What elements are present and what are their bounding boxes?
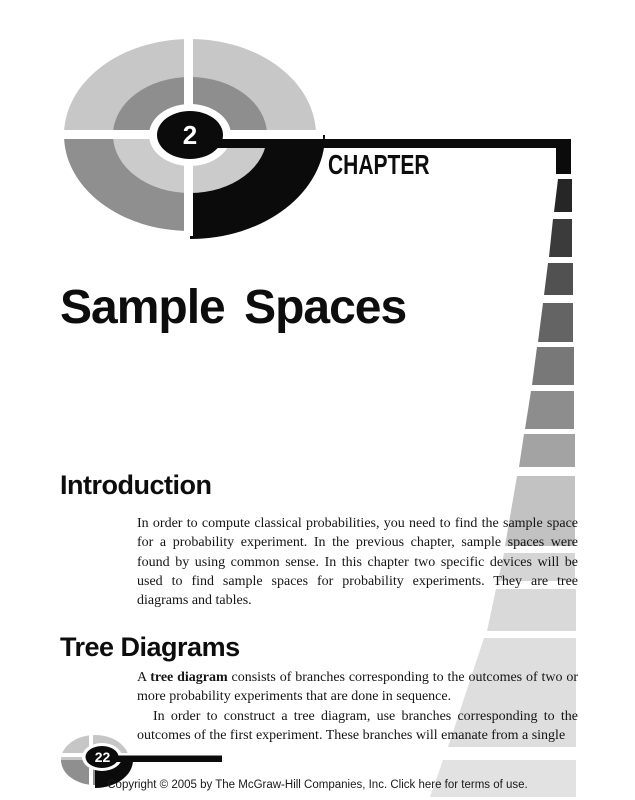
section-heading-introduction: Introduction — [60, 472, 211, 499]
tree-paragraph-2: In order to construct a tree diagram, us… — [137, 707, 578, 746]
tree-diagram-term: tree diagram — [150, 670, 227, 685]
staircase-block — [549, 219, 572, 257]
intro-paragraph: In order to compute classical probabilit… — [137, 514, 578, 610]
staircase-block — [538, 303, 573, 342]
page-title: Sample Spaces — [60, 284, 406, 332]
staircase-block — [525, 391, 574, 429]
staircase-block — [554, 179, 572, 212]
staircase-block — [532, 347, 574, 385]
staircase-block — [519, 434, 575, 467]
book-page: 2 CHAPTER Sample Spaces Introduction In … — [0, 0, 635, 800]
tree-paragraph-1: A tree diagram consists of branches corr… — [137, 668, 578, 707]
section-heading-tree-diagrams: Tree Diagrams — [60, 634, 240, 661]
chapter-number-badge: 2 — [178, 121, 202, 149]
staircase-block — [544, 263, 573, 295]
copyright-line: Copyright © 2005 by The McGraw-Hill Comp… — [0, 778, 635, 792]
page-number-badge: 22 — [89, 750, 116, 764]
terms-of-use-link[interactable]: Click here for terms of use. — [390, 779, 527, 791]
tree-paragraph-prefix: A — [137, 670, 150, 685]
footer-rule — [102, 756, 222, 763]
chapter-label: CHAPTER — [328, 151, 430, 179]
copyright-text: Copyright © 2005 by The McGraw-Hill Comp… — [107, 779, 390, 791]
